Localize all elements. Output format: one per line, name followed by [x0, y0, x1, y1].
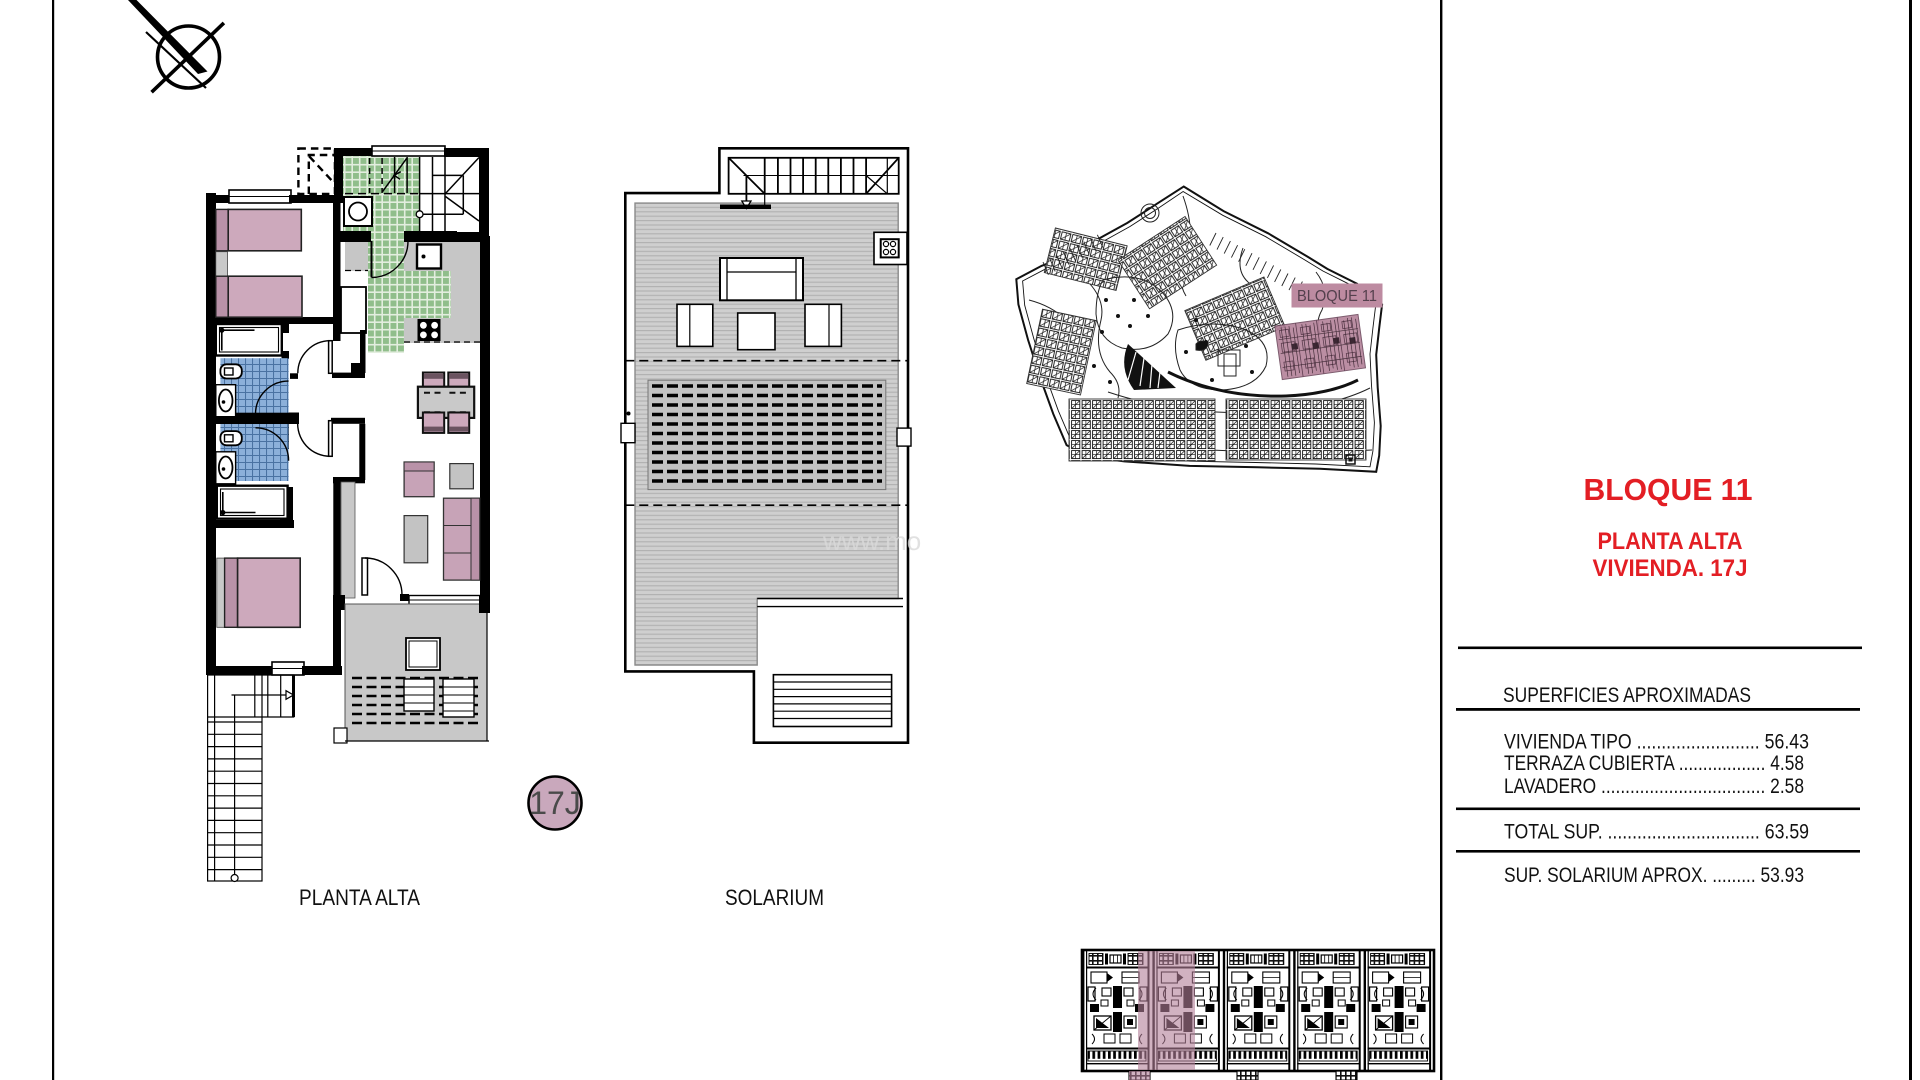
- svg-text:TOTAL SUP. ...................: TOTAL SUP. .............................…: [1504, 821, 1809, 844]
- svg-text:BLOQUE 11: BLOQUE 11: [1297, 288, 1377, 305]
- svg-text:VIVIENDA. 17J: VIVIENDA. 17J: [1593, 555, 1748, 582]
- svg-text:SOLARIUM: SOLARIUM: [725, 885, 824, 910]
- svg-text:BLOQUE 11: BLOQUE 11: [1584, 472, 1753, 507]
- svg-text:TERRAZA CUBIERTA .............: TERRAZA CUBIERTA .................. 4.58: [1504, 752, 1804, 775]
- svg-text:17J: 17J: [529, 785, 581, 821]
- svg-text:SUPERFICIES APROXIMADAS: SUPERFICIES APROXIMADAS: [1503, 684, 1751, 707]
- svg-text:LAVADERO .....................: LAVADERO ...............................…: [1504, 775, 1804, 798]
- svg-text:www.mo: www.mo: [822, 526, 921, 556]
- svg-text:PLANTA ALTA: PLANTA ALTA: [299, 885, 420, 910]
- svg-text:VIVIENDA TIPO ................: VIVIENDA TIPO ......................... …: [1504, 731, 1809, 754]
- svg-text:PLANTA ALTA: PLANTA ALTA: [1598, 528, 1743, 555]
- svg-text:SUP. SOLARIUM APROX. .........: SUP. SOLARIUM APROX. ......... 53.93: [1504, 864, 1804, 887]
